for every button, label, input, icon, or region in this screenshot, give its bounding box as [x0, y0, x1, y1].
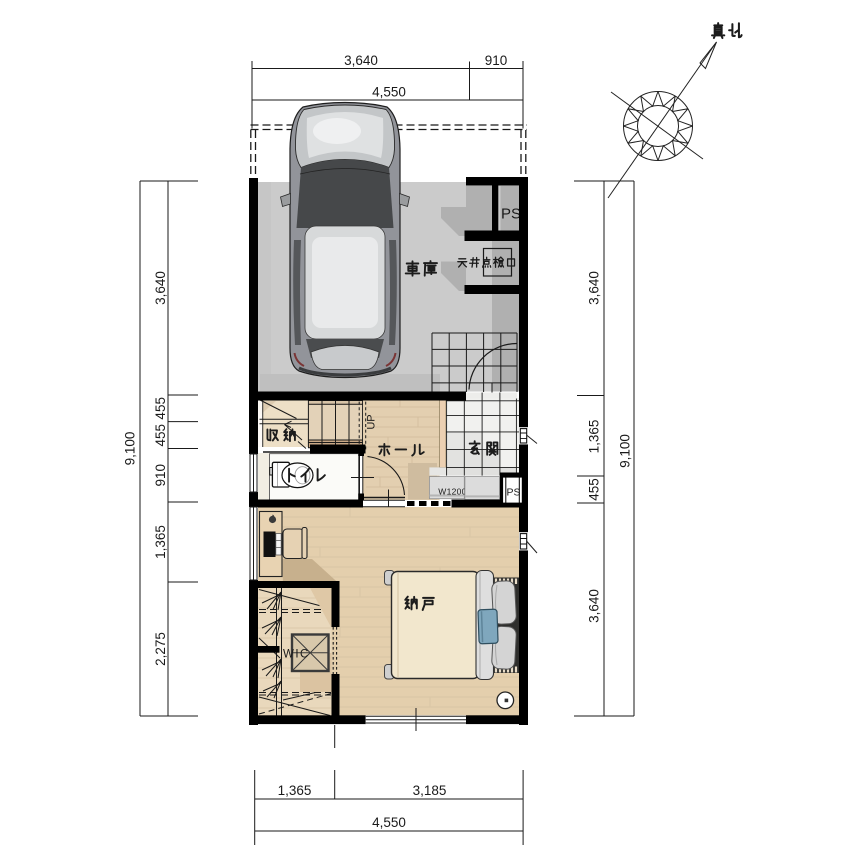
svg-text:1,365: 1,365 — [278, 783, 312, 798]
svg-text:PS: PS — [501, 206, 521, 223]
svg-text:455: 455 — [587, 478, 602, 501]
svg-text:455: 455 — [153, 424, 168, 447]
svg-text:3,185: 3,185 — [413, 783, 447, 798]
svg-text:9,100: 9,100 — [123, 432, 138, 466]
svg-text:3,640: 3,640 — [153, 271, 168, 305]
svg-text:3,640: 3,640 — [587, 271, 602, 305]
svg-text:W1200: W1200 — [438, 487, 466, 497]
svg-text:3,640: 3,640 — [587, 589, 602, 623]
svg-text:4,550: 4,550 — [372, 85, 406, 100]
svg-text:1,365: 1,365 — [587, 420, 602, 454]
svg-text:PS: PS — [507, 487, 521, 499]
svg-text:910: 910 — [485, 53, 508, 68]
svg-text:9,100: 9,100 — [618, 434, 633, 468]
svg-text:4,550: 4,550 — [372, 815, 406, 830]
svg-text:WIC: WIC — [283, 649, 310, 661]
svg-text:1,365: 1,365 — [153, 525, 168, 559]
svg-text:UP: UP — [366, 414, 378, 429]
svg-text:910: 910 — [153, 464, 168, 487]
svg-text:455: 455 — [153, 397, 168, 420]
svg-text:3,640: 3,640 — [344, 53, 378, 68]
svg-text:2,275: 2,275 — [153, 632, 168, 666]
